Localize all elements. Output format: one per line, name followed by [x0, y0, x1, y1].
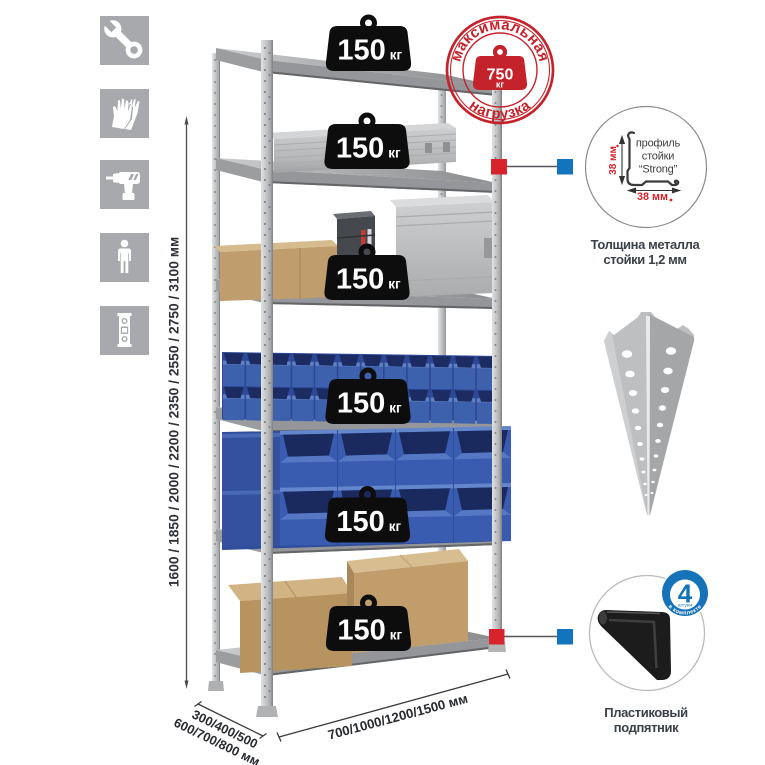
- svg-text:подпятник: подпятник: [614, 720, 679, 735]
- svg-text:150: 150: [337, 388, 385, 420]
- svg-text:кг: кг: [388, 277, 401, 292]
- svg-text:“Strong”: “Strong”: [639, 164, 678, 176]
- svg-text:150: 150: [336, 264, 384, 296]
- svg-text:кг: кг: [390, 628, 403, 643]
- svg-text:кг: кг: [496, 80, 505, 90]
- svg-text:38 мм: 38 мм: [637, 191, 668, 203]
- svg-text:кг: кг: [389, 519, 402, 534]
- svg-text:штуки: штуки: [678, 604, 693, 609]
- svg-text:38 мм: 38 мм: [608, 146, 619, 175]
- svg-text:профиль: профиль: [636, 138, 681, 150]
- svg-text:кг: кг: [390, 48, 403, 63]
- svg-text:150: 150: [337, 615, 385, 647]
- svg-text:кг: кг: [389, 401, 402, 416]
- svg-text:150: 150: [337, 35, 385, 67]
- svg-text:стойки: стойки: [642, 151, 674, 163]
- svg-text:кг: кг: [388, 146, 401, 161]
- svg-text:Пластиковый: Пластиковый: [604, 705, 688, 720]
- svg-text:Толщина металла: Толщина металла: [591, 237, 701, 252]
- svg-text:150: 150: [336, 133, 384, 165]
- svg-text:1600 / 1850 / 2000 / 2200 / 23: 1600 / 1850 / 2000 / 2200 / 2350 / 2550 …: [167, 237, 182, 587]
- svg-text:стойки 1,2 мм: стойки 1,2 мм: [603, 252, 686, 267]
- svg-text:150: 150: [336, 506, 384, 538]
